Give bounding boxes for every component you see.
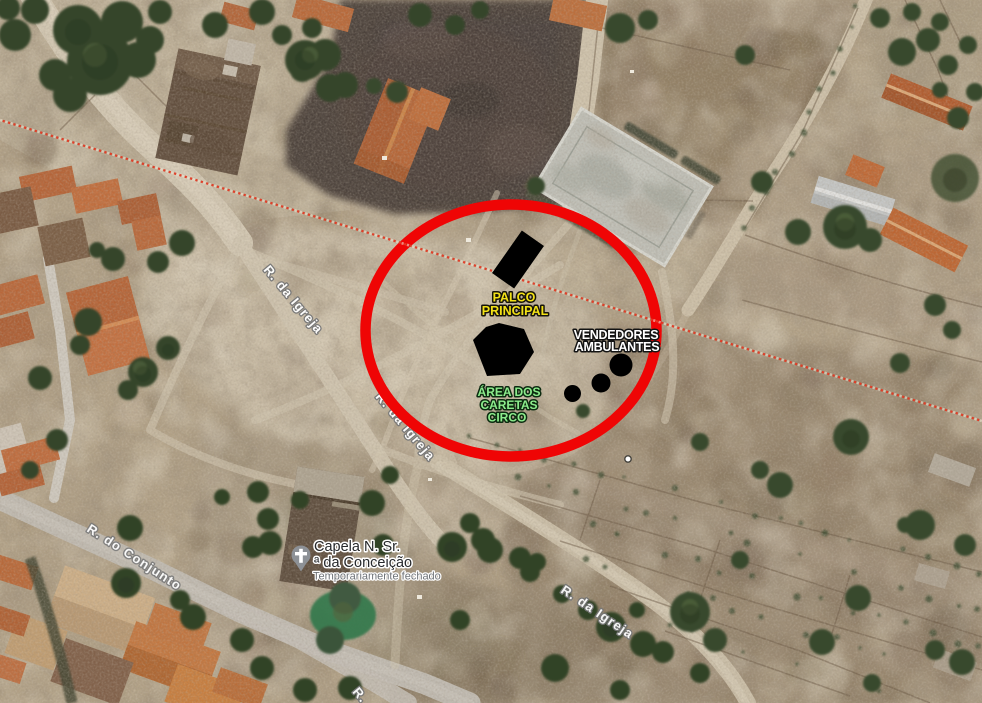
svg-text:PRINCIPAL: PRINCIPAL [482, 304, 549, 318]
svg-text:AMBULANTES: AMBULANTES [575, 340, 660, 354]
svg-text:ª da Conceição: ª da Conceição [314, 555, 412, 571]
svg-text:Temporariamente fechado: Temporariamente fechado [313, 571, 441, 583]
svg-text:PALCO: PALCO [493, 291, 536, 305]
svg-text:ÁREA DOS: ÁREA DOS [478, 384, 541, 399]
svg-text:CIRCO: CIRCO [488, 411, 527, 425]
svg-text:Capela N. Sr.: Capela N. Sr. [314, 539, 400, 555]
